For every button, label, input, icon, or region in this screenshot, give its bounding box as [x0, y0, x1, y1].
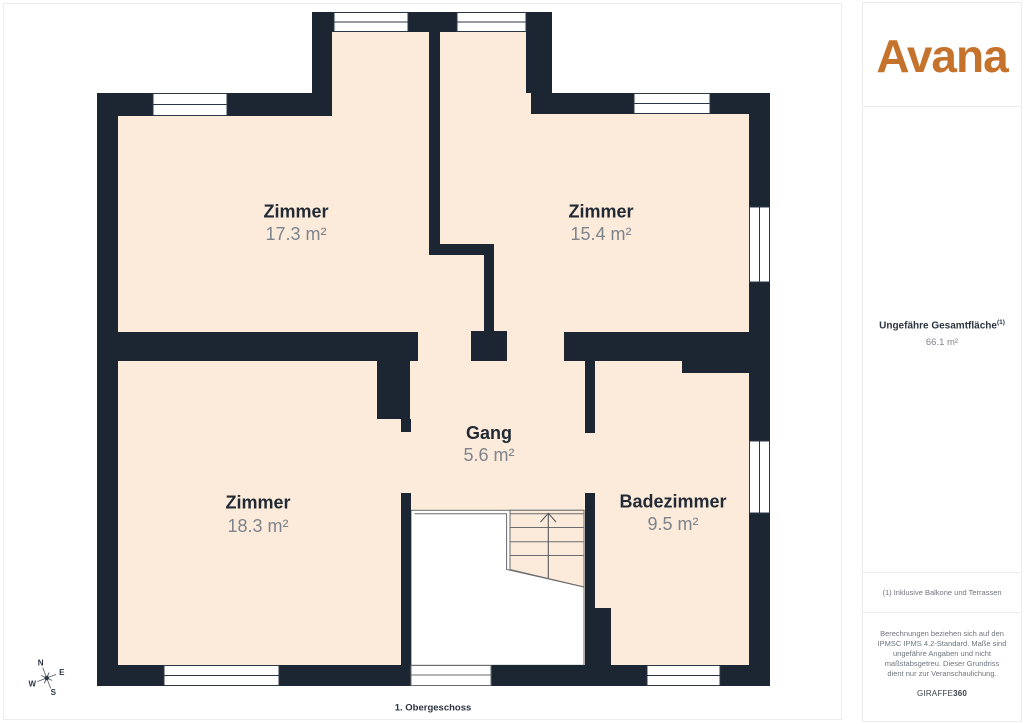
svg-text:S: S — [51, 688, 57, 697]
svg-text:Zimmer: Zimmer — [225, 493, 290, 513]
svg-text:18.3 m²: 18.3 m² — [227, 516, 288, 536]
svg-text:15.4 m²: 15.4 m² — [570, 224, 631, 244]
svg-text:N: N — [38, 659, 44, 668]
svg-text:W: W — [29, 680, 37, 689]
svg-text:E: E — [59, 668, 65, 677]
svg-text:9.5 m²: 9.5 m² — [647, 514, 698, 534]
svg-text:Zimmer: Zimmer — [263, 201, 328, 221]
svg-text:17.3 m²: 17.3 m² — [265, 224, 326, 244]
svg-text:Badezimmer: Badezimmer — [619, 492, 726, 512]
svg-text:5.6 m²: 5.6 m² — [463, 445, 514, 465]
svg-text:Gang: Gang — [466, 423, 512, 443]
svg-text:Zimmer: Zimmer — [568, 201, 633, 221]
svg-text:1. Obergeschoss: 1. Obergeschoss — [395, 703, 472, 714]
